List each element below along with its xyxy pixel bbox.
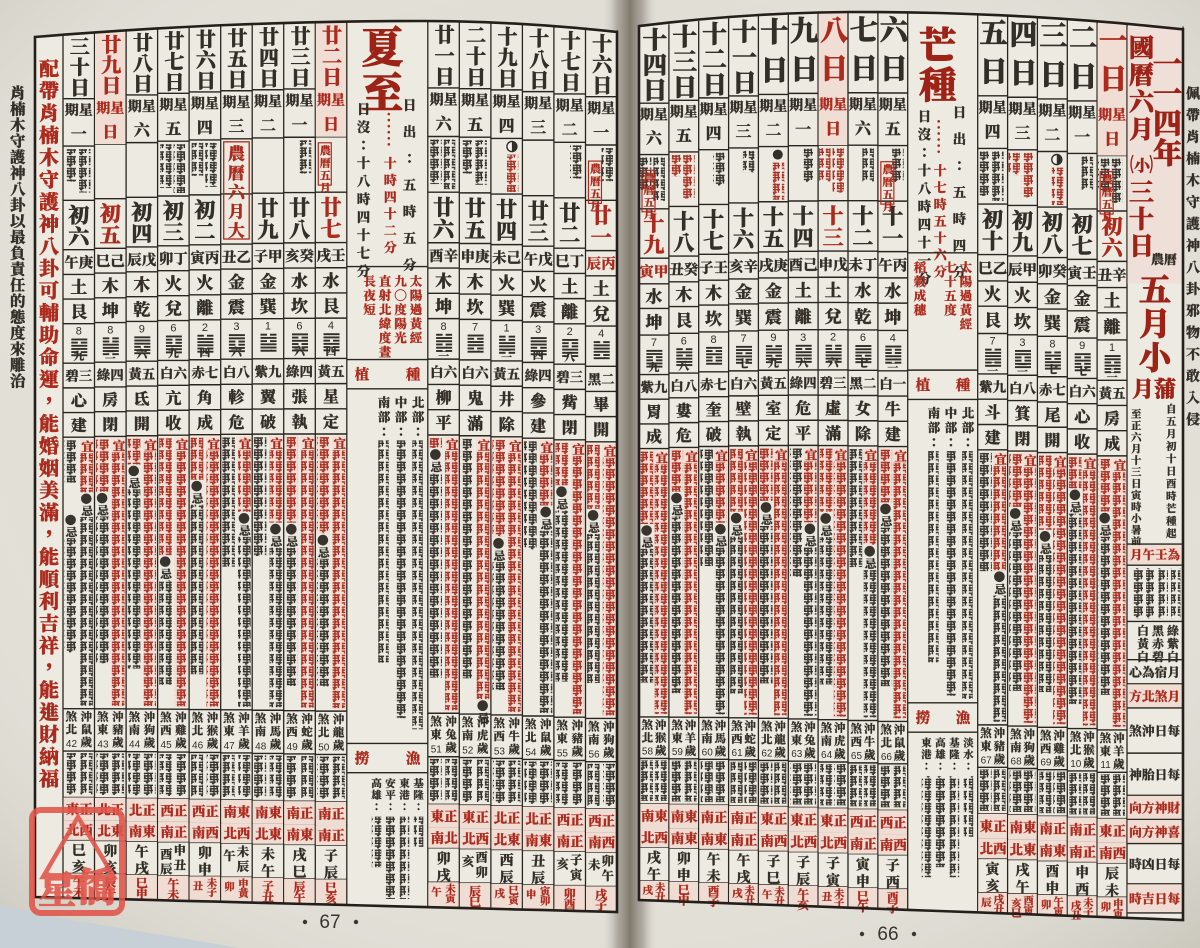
- svg-text:49: 49: [287, 742, 299, 753]
- svg-text:11: 11: [1100, 760, 1111, 771]
- svg-text:62: 62: [761, 748, 773, 759]
- svg-text:42: 42: [66, 739, 78, 750]
- svg-text:4: 4: [598, 328, 604, 340]
- svg-text:9: 9: [770, 332, 776, 344]
- svg-text:1: 1: [504, 323, 510, 335]
- svg-text:67: 67: [981, 755, 993, 766]
- svg-text:9: 9: [139, 323, 145, 335]
- svg-text:69: 69: [1040, 758, 1052, 769]
- svg-text:47: 47: [224, 741, 236, 752]
- svg-text:54: 54: [525, 747, 537, 758]
- svg-text:8: 8: [107, 324, 113, 336]
- svg-text:2: 2: [202, 322, 208, 334]
- svg-text:48: 48: [255, 741, 267, 752]
- svg-text:44: 44: [129, 740, 141, 751]
- svg-text:66: 66: [881, 752, 893, 763]
- svg-text:8: 8: [711, 334, 717, 346]
- svg-text:45: 45: [161, 740, 173, 751]
- svg-text:6: 6: [296, 320, 302, 332]
- svg-text:53: 53: [494, 746, 506, 757]
- svg-text:51: 51: [431, 745, 443, 756]
- svg-text:8: 8: [1049, 338, 1055, 350]
- svg-text:52: 52: [462, 745, 474, 756]
- svg-text:3: 3: [800, 332, 806, 344]
- svg-text:3: 3: [535, 324, 541, 336]
- svg-text:2: 2: [567, 326, 573, 338]
- svg-text:7: 7: [990, 336, 996, 348]
- svg-text:10: 10: [1070, 759, 1082, 770]
- svg-text:6: 6: [860, 332, 866, 344]
- svg-text:50: 50: [318, 742, 330, 753]
- svg-text:56: 56: [588, 750, 600, 761]
- svg-text:59: 59: [672, 747, 684, 758]
- svg-text:8: 8: [441, 321, 447, 333]
- svg-text:1: 1: [1109, 342, 1115, 354]
- svg-text:43: 43: [97, 739, 109, 750]
- svg-text:7: 7: [651, 337, 657, 349]
- svg-text:4: 4: [328, 320, 334, 332]
- svg-text:68: 68: [1011, 756, 1023, 767]
- svg-text:9: 9: [1079, 340, 1085, 352]
- svg-text:2: 2: [830, 332, 836, 344]
- svg-text:66: 66: [877, 924, 898, 945]
- svg-text:3: 3: [1019, 337, 1025, 349]
- svg-text:8: 8: [76, 326, 82, 338]
- svg-text:61: 61: [732, 748, 744, 759]
- svg-text:64: 64: [821, 750, 833, 761]
- svg-text:6: 6: [681, 335, 687, 347]
- svg-text:58: 58: [642, 747, 654, 758]
- svg-text:67: 67: [319, 912, 340, 933]
- svg-text:1: 1: [265, 321, 271, 333]
- svg-text:7: 7: [740, 333, 746, 345]
- svg-text:6: 6: [170, 323, 176, 335]
- svg-text:7: 7: [472, 321, 478, 333]
- svg-text:65: 65: [851, 751, 863, 762]
- svg-text:46: 46: [192, 740, 204, 751]
- svg-text:3: 3: [233, 321, 239, 333]
- svg-text:4: 4: [890, 332, 896, 344]
- svg-text:63: 63: [791, 749, 803, 760]
- svg-text:60: 60: [702, 747, 714, 758]
- svg-text:55: 55: [557, 748, 569, 759]
